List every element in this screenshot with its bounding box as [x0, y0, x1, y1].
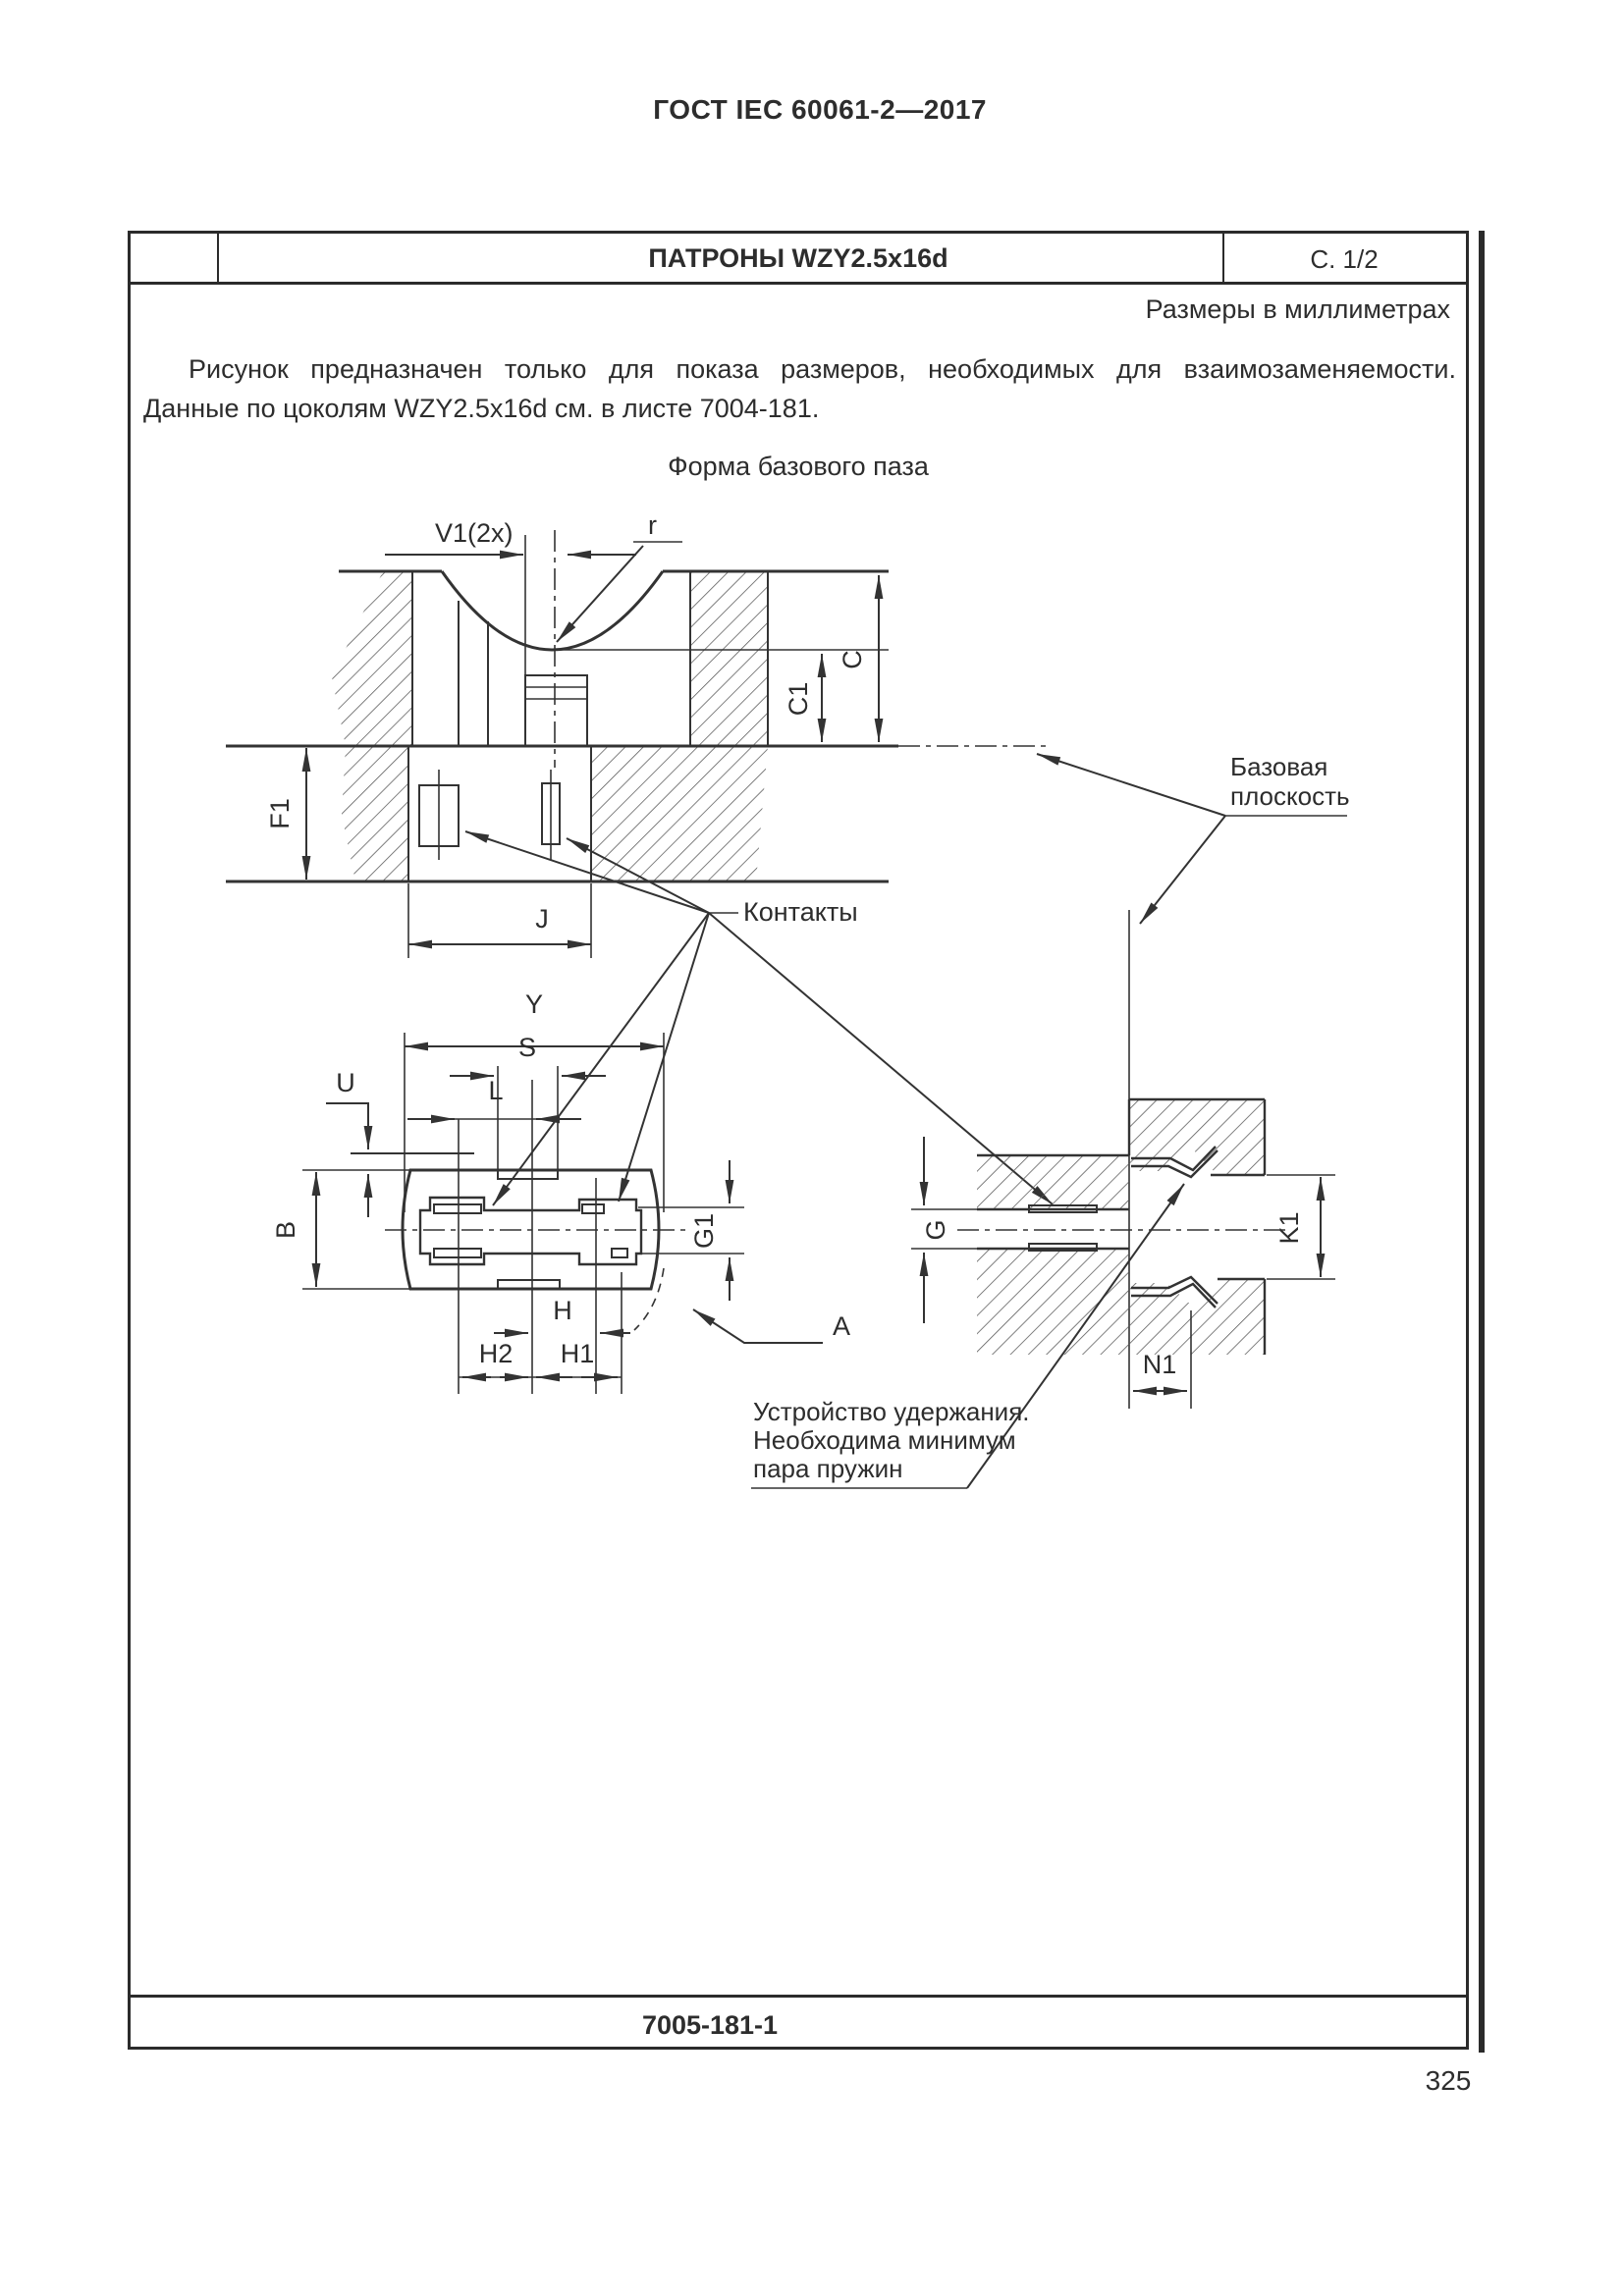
contacts-annotation: Контакты	[465, 831, 1053, 1205]
dim-label-b: B	[271, 1221, 300, 1239]
dim-label-f1: F1	[265, 798, 295, 829]
page-number: 325	[1394, 2065, 1502, 2097]
dim-label-h: H	[553, 1296, 572, 1325]
dim-label-j: J	[535, 904, 549, 934]
dim-label-u: U	[336, 1068, 355, 1097]
dim-label-s: S	[518, 1033, 536, 1062]
standard-reference: ГОСТ IEC 60061-2—2017	[545, 94, 987, 126]
dim-label-g: G	[921, 1219, 950, 1240]
technical-drawing: V1(2x) r C C1 F1 J Базовая плоскость Кон…	[128, 491, 1473, 1590]
dim-label-y: Y	[525, 989, 543, 1019]
figure-caption: Форма базового паза	[131, 452, 1466, 482]
intro-line-1: Рисунок предназначен только для показа р…	[143, 349, 1456, 389]
base-plane-label-line1: Базовая	[1230, 752, 1327, 781]
dim-label-h1: H1	[561, 1339, 595, 1368]
dim-label-n1: N1	[1143, 1350, 1177, 1379]
frame-double-rule	[1479, 231, 1485, 2053]
dim-label-k1: K1	[1274, 1211, 1304, 1244]
retention-label-line1: Устройство удержания.	[753, 1397, 1030, 1426]
dim-label-h2: H2	[479, 1339, 514, 1368]
sheet-page-indicator: С. 1/2	[1222, 244, 1466, 275]
dim-label-c: C	[838, 650, 867, 669]
base-plane-label-line2: плоскость	[1230, 781, 1350, 811]
intro-paragraph: Рисунок предназначен только для показа р…	[143, 349, 1456, 428]
dim-label-c1: C1	[784, 682, 813, 717]
view-side-section: G K1 N1	[911, 1099, 1335, 1409]
intro-line-2: Данные по цоколям WZY2.5x16d см. в листе…	[143, 389, 1456, 428]
dim-label-v1: V1(2x)	[435, 518, 514, 548]
dim-label-a: A	[833, 1311, 850, 1341]
view-upper-section: V1(2x) r C C1 F1 J	[226, 510, 1046, 958]
contacts-label: Контакты	[743, 897, 858, 927]
title-block-row: ПАТРОНЫ WZY2.5x16d С. 1/2	[131, 234, 1466, 285]
retention-label-line2: Необходима минимум	[753, 1425, 1016, 1455]
dim-label-g1: G1	[689, 1213, 719, 1249]
retention-label-line3: пара пружин	[753, 1454, 903, 1483]
sheet-number: 7005-181-1	[131, 2010, 1289, 2041]
units-note: Размеры в миллиметрах	[1146, 294, 1450, 325]
dim-label-l: L	[488, 1076, 503, 1105]
dim-label-r: r	[648, 510, 657, 540]
view-bottom: Y S U L B G1 H H2 H1 A	[271, 989, 850, 1394]
footer-row: 7005-181-1	[131, 1995, 1466, 2047]
